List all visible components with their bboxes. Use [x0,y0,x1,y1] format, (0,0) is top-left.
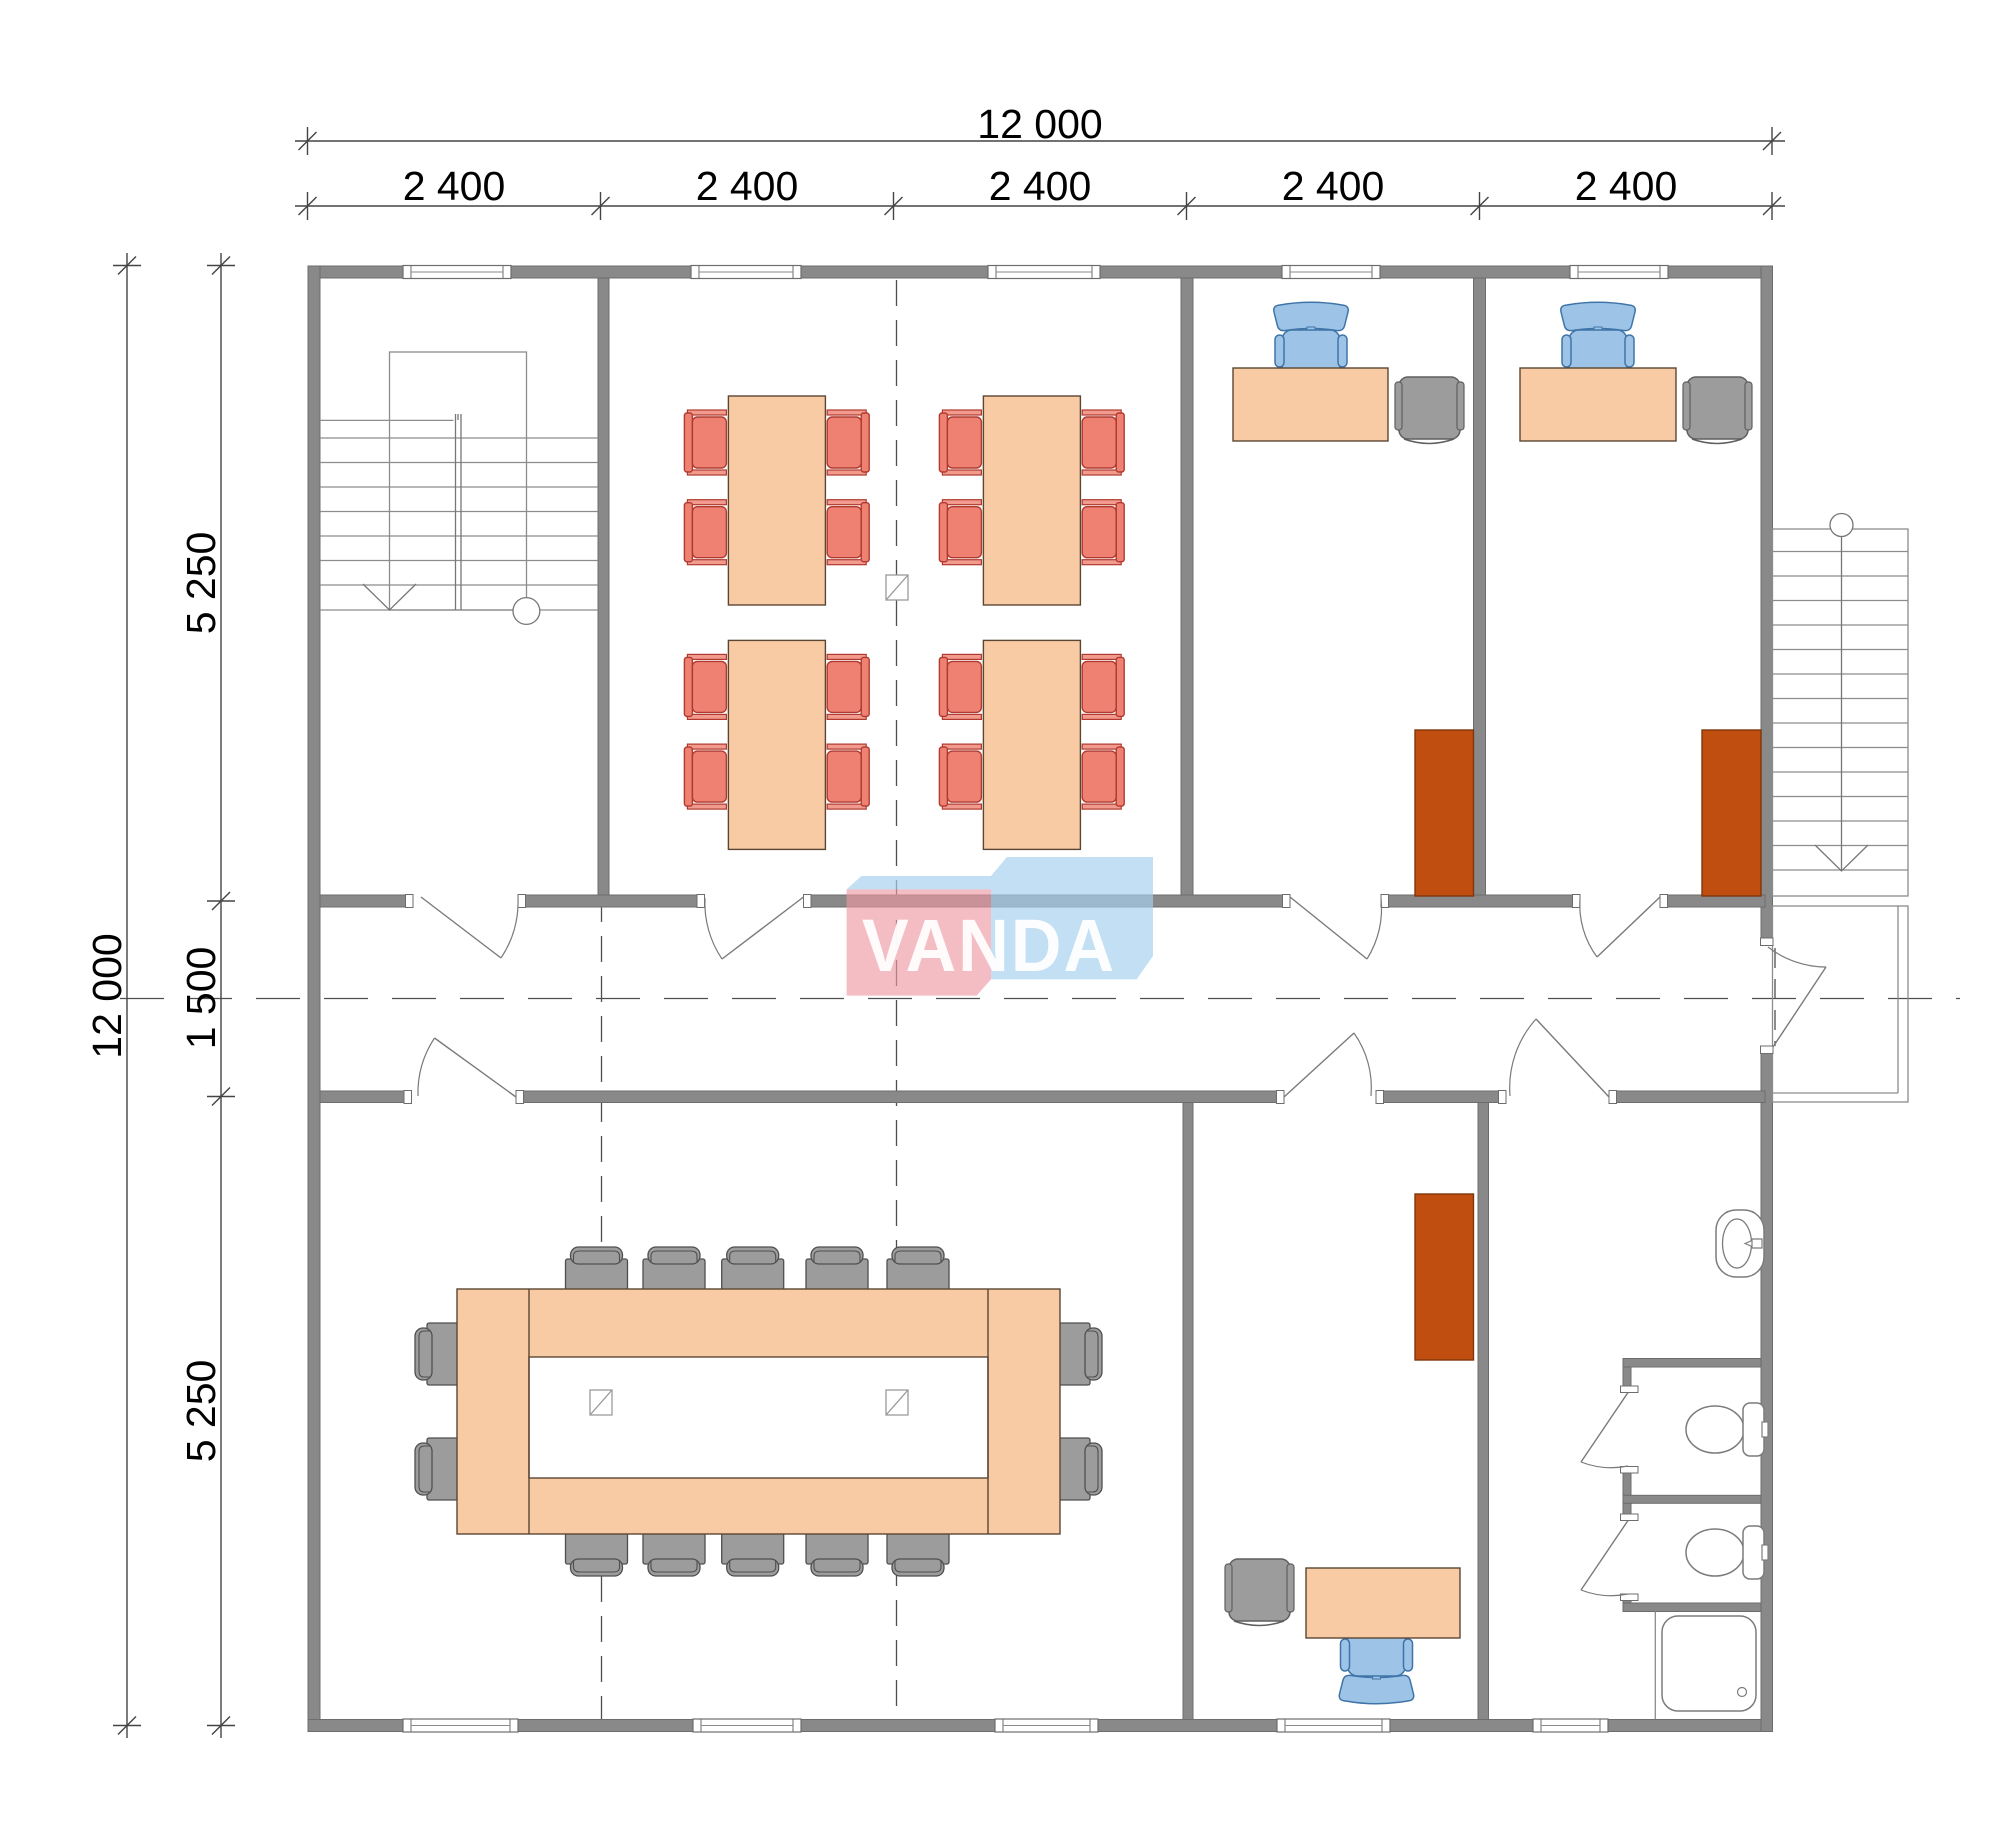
svg-text:5 250: 5 250 [178,1360,224,1463]
svg-text:12 000: 12 000 [977,101,1102,147]
svg-text:12 000: 12 000 [84,933,130,1058]
svg-text:2 400: 2 400 [1575,163,1678,209]
svg-text:2 400: 2 400 [1282,163,1385,209]
svg-text:5 250: 5 250 [178,532,224,635]
svg-text:2 400: 2 400 [696,163,799,209]
svg-text:2 400: 2 400 [989,163,1092,209]
svg-text:1 500: 1 500 [178,947,224,1050]
svg-text:VANDA: VANDA [862,905,1116,987]
svg-text:2 400: 2 400 [403,163,506,209]
